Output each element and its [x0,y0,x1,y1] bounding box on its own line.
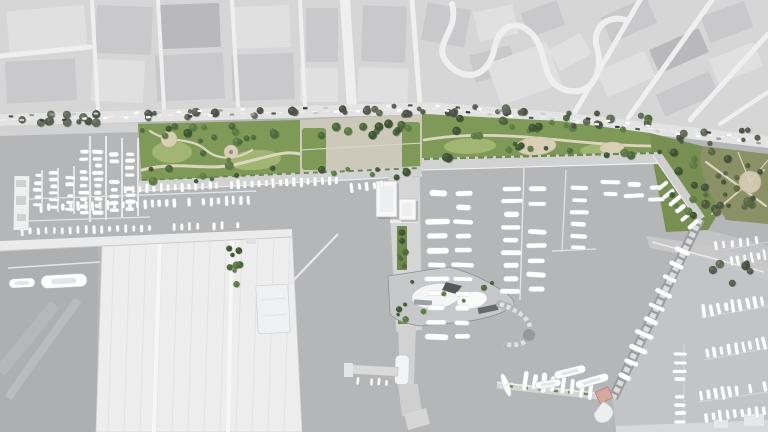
parked-car [365,106,370,108]
parked-car [230,113,235,115]
tree-highlight [385,121,389,125]
moored-boat [109,152,119,157]
fountain [229,150,233,154]
moored-boat [125,186,135,191]
moored-boat [66,201,73,205]
tree-highlight [332,172,334,174]
tree-highlight [201,174,204,177]
tree-highlight [237,262,240,265]
tree-highlight [745,199,748,202]
moored-boat [504,276,519,281]
moored-boat [236,179,240,190]
tree-icon [198,138,203,143]
parked-car [29,114,34,116]
moored-boat [215,182,218,189]
tree-icon [594,111,600,117]
moored-boat [110,208,119,212]
tree-highlight [212,110,216,114]
moored-boat [80,197,88,202]
tree-highlight [516,145,519,148]
tree-icon [745,163,750,168]
moored-boat [427,305,444,310]
moored-boat [61,204,65,211]
tree-highlight [234,139,237,142]
tree-highlight [709,149,712,152]
tree-icon [502,104,510,112]
tree-icon [339,105,347,113]
parked-car [498,109,503,111]
tree-highlight [462,299,463,300]
parked-car [82,117,87,120]
tree-highlight [185,115,188,118]
tree-highlight [755,136,757,138]
tree-icon [225,161,234,170]
tree-highlight [748,269,751,272]
moored-boat [503,238,518,243]
tree-icon [270,130,279,139]
tree-highlight [568,149,570,151]
tree-icon [251,135,256,140]
moored-boat [65,182,74,186]
tree-highlight [443,154,447,158]
parked-car [208,114,213,117]
tree-icon [723,171,727,175]
moored-boat [67,194,73,198]
tree-icon [235,247,242,254]
tree-icon [200,173,207,180]
moored-boat [80,150,89,154]
moored-boat [500,289,520,294]
tree-highlight [402,264,404,266]
moored-boat [271,178,275,189]
parked-car [323,107,328,109]
parked-car [62,118,67,121]
tree-highlight [742,138,744,140]
tree-highlight [227,158,229,160]
tree-icon [402,168,410,176]
parked-car [271,112,276,114]
moored-boat [529,286,545,291]
moored-boat [76,226,79,234]
moored-boat [306,178,310,185]
harbor-building-roof [402,203,412,216]
moored-boat [187,198,191,207]
tree-highlight [457,116,460,119]
moored-boat [528,259,545,264]
moored-boat [180,223,183,230]
tree-icon [318,166,326,174]
moored-boat [173,223,176,231]
tree-highlight [544,147,546,149]
tree-highlight [77,120,79,122]
tree-highlight [506,147,509,150]
tree-highlight [148,112,150,114]
parked-car [313,112,318,115]
tree-icon [471,132,478,139]
moored-boat [33,203,43,207]
tree-highlight [681,131,684,134]
tree-highlight [236,248,239,251]
moored-boat [196,223,199,230]
tree-icon [402,110,410,118]
tree-highlight [453,128,456,131]
moored-boat [34,195,41,199]
moored-boat [49,198,59,201]
tree-highlight [271,131,275,135]
parked-car [134,111,139,114]
tree-icon [723,192,727,196]
tree-highlight [674,204,676,206]
moored-boat [165,199,169,207]
moored-boat [126,152,134,156]
harbor-building-roof [380,186,393,212]
tree-highlight [473,105,475,107]
tree-highlight [397,313,398,314]
moored-boat [528,229,547,235]
moored-boat [85,225,88,234]
parked-car [466,111,471,114]
tree-highlight [704,193,706,195]
city-street [345,0,352,108]
parked-car [706,131,711,134]
tree-highlight [717,261,720,264]
tree-icon [257,107,264,114]
tree-highlight [370,173,372,175]
tree-highlight [564,124,566,126]
parked-car [529,117,534,119]
tree-icon [370,172,375,177]
tree-highlight [397,307,399,309]
moored-boat [380,180,384,188]
moored-boat [225,196,229,206]
tree-icon [79,113,87,121]
moored-boat [648,197,665,201]
tree-highlight [510,125,512,127]
moored-boat [35,174,42,177]
city-block [233,5,290,49]
moored-boat [138,186,142,193]
parked-car [156,111,161,113]
parked-car [386,105,391,107]
moored-boat [424,276,449,281]
moored-boat [425,218,450,224]
tree-highlight [496,110,498,112]
tree-highlight [400,230,403,233]
parked-car [606,120,611,123]
tree-highlight [567,111,569,113]
parked-car [50,113,55,116]
moored-boat [79,157,88,161]
tree-icon [701,184,709,192]
moored-boat [208,181,212,189]
tree-highlight [226,163,230,167]
moored-boat [528,202,546,206]
tree-icon [680,130,688,138]
tree-icon [396,306,402,312]
tree-icon [140,128,145,133]
tree-icon [669,192,675,198]
moored-boat [730,240,734,248]
moored-boat [92,171,104,175]
moored-boat [210,197,213,206]
tree-highlight [758,170,760,172]
parked-car [198,110,203,112]
tree-icon [229,123,236,130]
tree-highlight [710,267,713,270]
parked-car [188,115,193,117]
moored-boat [675,395,685,399]
moored-boat [529,186,547,191]
parked-car [19,119,24,121]
moored-boat [456,233,472,238]
tree-icon [490,281,494,285]
tree-highlight [406,126,409,129]
tree-highlight [404,169,407,172]
tree-icon [505,147,511,153]
moored-boat [455,305,470,311]
tree-highlight [628,152,631,155]
moored-boat [451,262,474,268]
tree-highlight [149,167,151,169]
moored-boat [111,188,118,192]
site-plan-map [0,0,768,432]
moored-boat [94,197,103,201]
moored-boat [157,199,161,207]
moored-boat [572,198,587,202]
tree-highlight [370,132,373,135]
tree-icon [394,174,400,180]
tree-highlight [153,112,155,114]
tree-highlight [271,166,273,168]
tree-highlight [403,317,406,320]
parked-car [103,117,108,119]
moored-boat [673,352,687,356]
moored-boat [217,198,221,205]
tree-icon [745,127,751,133]
moored-boat [50,184,58,188]
moored-boat [623,193,644,198]
city-block [357,67,408,103]
moored-boat [49,177,58,181]
tree-icon [442,153,451,162]
tree-icon [384,119,393,128]
tree-icon [403,303,407,307]
moored-boat [570,185,588,190]
moored-boat [145,183,149,193]
moored-boat [125,207,134,211]
tree-highlight [228,265,231,268]
tree-highlight [730,281,733,284]
parked-car [397,109,402,111]
tree-highlight [258,108,261,111]
moored-boat [140,225,143,233]
tree-icon [226,157,230,161]
tree-icon [757,169,762,174]
moored-boat [49,191,59,194]
moored-boat [125,165,135,169]
moored-boat [124,224,127,233]
tree-highlight [231,253,233,255]
moored-boat [172,198,176,208]
parked-car [408,104,413,106]
tree-highlight [377,110,380,113]
tree-icon [368,131,377,140]
parked-car [240,108,245,110]
tree-highlight [417,107,419,109]
tree-icon [405,125,412,132]
tree-highlight [193,109,196,112]
tree-highlight [746,128,748,130]
tree-highlight [333,124,337,128]
tree-highlight [605,153,607,155]
tree-highlight [346,168,348,170]
city-block [5,58,77,104]
moored-boat [33,188,43,192]
moored-boat [78,191,89,195]
tree-highlight [708,142,710,144]
tree-icon [331,171,337,177]
city-block [231,53,295,101]
moored-boat [502,187,521,192]
moored-boat [166,184,169,191]
tree-highlight [513,142,515,144]
tree-icon [236,261,243,268]
tree-highlight [702,185,705,188]
moored-boat [95,163,102,167]
moored-boat [722,241,725,249]
tree-icon [481,285,487,291]
moored-boat [68,226,71,234]
tree-highlight [691,162,694,165]
moored-boat [109,159,119,163]
tree-icon [233,281,239,287]
tree-highlight [340,106,343,109]
tree-highlight [751,196,753,198]
tree-icon [270,165,275,170]
tree-icon [188,109,192,113]
moored-boat [50,205,59,209]
tree-highlight [503,105,506,108]
tree-icon [63,111,71,119]
moored-boat [79,204,88,208]
moored-boat [108,226,111,232]
tree-icon [234,173,239,178]
pier-building [16,180,26,187]
tree-icon [392,104,397,109]
parked-car [303,107,308,109]
tree-icon [226,245,232,251]
tree-highlight [364,108,367,111]
moored-boat [426,248,448,255]
moored-boat [230,181,233,189]
tree-icon [189,123,197,131]
tree-highlight [572,124,574,126]
tree-icon [549,120,554,125]
tree-highlight [199,139,201,141]
moored-boat [453,219,473,225]
tree-icon [709,266,717,274]
parked-car [40,119,45,121]
parked-car [9,115,14,117]
moored-boat [188,222,191,231]
tree-icon [201,124,207,130]
tree-icon [192,108,198,114]
parked-car [435,105,440,108]
parked-car [250,113,255,115]
tree-icon [566,111,571,116]
tree-highlight [722,180,724,182]
moored-boat [37,228,41,236]
moored-boat [80,176,89,181]
tree-highlight [691,213,694,216]
moored-boat [501,250,522,255]
parked-car [146,116,151,119]
moored-boat [121,201,124,208]
moored-boat [92,210,103,214]
tree-icon [401,263,406,268]
moored-boat [44,227,47,234]
moored-boat [675,411,687,416]
tree-highlight [491,282,493,284]
parked-car [94,112,99,114]
tree-highlight [746,164,748,166]
parked-car [334,110,339,113]
moored-boat [136,201,139,208]
tree-highlight [645,116,648,119]
tree-highlight [235,174,237,176]
parked-car [541,113,546,116]
pier-building [16,196,26,205]
tree-highlight [714,209,717,212]
moored-boat [80,184,88,188]
tree-highlight [141,129,143,131]
tree-highlight [676,168,679,171]
yacht-deck [15,281,29,286]
quay-structure [744,414,764,426]
tree-highlight [421,309,423,311]
moored-boat [232,196,235,205]
moored-boat [454,320,469,325]
tree-highlight [395,175,397,177]
tree-highlight [166,127,168,129]
tree-icon [359,123,367,131]
tree-icon [606,115,615,124]
moored-boat [385,380,388,386]
tree-highlight [400,239,402,241]
tree-icon [729,280,736,287]
moored-boat [265,180,268,187]
moored-boat [429,190,447,197]
tree-icon [716,260,725,269]
tree-highlight [64,112,67,115]
tree-icon [743,197,751,205]
tree-icon [149,177,158,186]
quay-structure [246,238,256,244]
moored-boat [603,192,617,197]
tree-highlight [692,183,695,186]
moored-boat [292,177,296,187]
tree-icon [713,208,721,216]
tree-highlight [692,156,694,158]
tree-icon [92,118,101,127]
moored-boat [94,204,101,208]
tree-icon [171,123,178,130]
tree-highlight [212,135,214,137]
moored-boat [456,204,471,210]
tree-highlight [718,203,721,206]
tree-highlight [716,174,718,176]
moored-boat [501,199,523,204]
